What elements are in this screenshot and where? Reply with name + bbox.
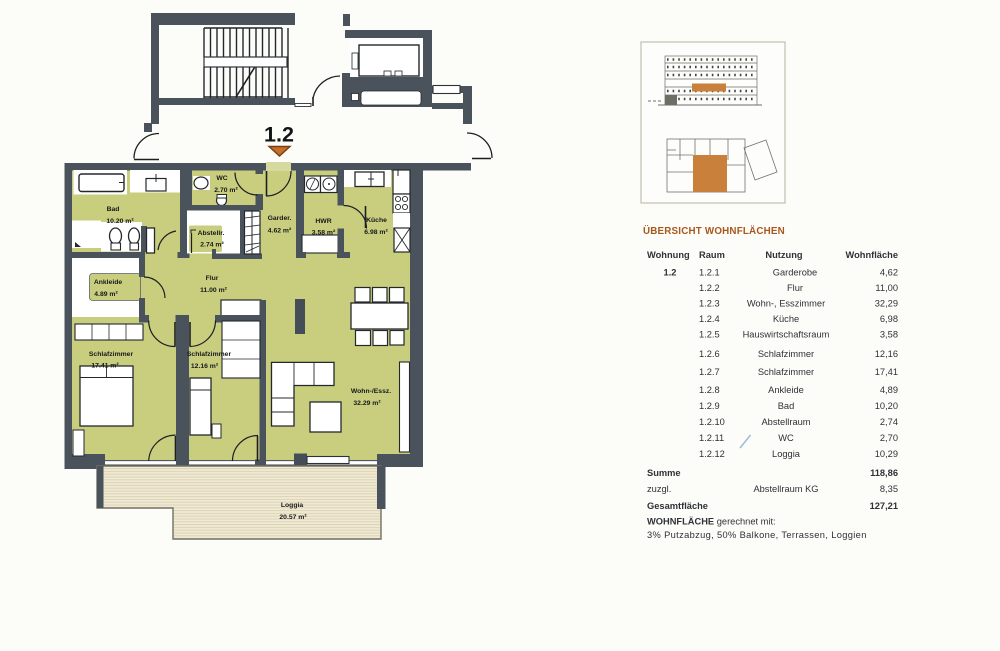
svg-text:zuzgl.: zuzgl. — [647, 484, 671, 494]
svg-text:Garder.: Garder. — [268, 215, 292, 222]
svg-text:2.70 m²: 2.70 m² — [214, 187, 238, 194]
svg-text:Nutzung: Nutzung — [765, 250, 802, 260]
svg-text:Flur: Flur — [787, 283, 803, 293]
svg-text:1.2.5: 1.2.5 — [699, 330, 720, 340]
svg-text:Gesamtfläche: Gesamtfläche — [647, 501, 708, 511]
svg-text:8,35: 8,35 — [880, 484, 898, 494]
svg-text:Wohn-/Essz.: Wohn-/Essz. — [351, 388, 391, 395]
svg-text:3,58: 3,58 — [880, 330, 898, 340]
svg-text:32,29: 32,29 — [875, 299, 898, 309]
svg-text:2.74 m²: 2.74 m² — [200, 242, 224, 249]
svg-text:1.2.1: 1.2.1 — [699, 268, 720, 278]
svg-text:1.2.10: 1.2.10 — [699, 417, 725, 427]
svg-text:11.00 m²: 11.00 m² — [200, 287, 228, 294]
svg-text:Bad: Bad — [107, 206, 120, 213]
svg-text:6.98 m²: 6.98 m² — [364, 229, 388, 236]
svg-text:Wohn-, Esszimmer: Wohn-, Esszimmer — [747, 299, 825, 309]
svg-text:HWR: HWR — [315, 218, 331, 225]
svg-text:1.2.12: 1.2.12 — [699, 449, 725, 459]
svg-text:2,70: 2,70 — [880, 433, 898, 443]
svg-text:Flur: Flur — [206, 275, 219, 282]
svg-text:1.2.7: 1.2.7 — [699, 367, 720, 377]
svg-text:Abstellraum: Abstellraum — [761, 417, 810, 427]
svg-text:WOHNFLÄCHE gerechnet mit:: WOHNFLÄCHE gerechnet mit: — [647, 517, 776, 527]
svg-text:10,29: 10,29 — [875, 449, 898, 459]
svg-text:Raum: Raum — [699, 250, 725, 260]
svg-text:1.2.6: 1.2.6 — [699, 349, 720, 359]
svg-text:Hauswirtschaftsraum: Hauswirtschaftsraum — [743, 330, 830, 340]
svg-text:Summe: Summe — [647, 468, 681, 478]
svg-text:1.2: 1.2 — [664, 268, 677, 278]
svg-text:1.2.11: 1.2.11 — [699, 433, 724, 443]
svg-text:6,98: 6,98 — [880, 314, 898, 324]
svg-text:4.62 m²: 4.62 m² — [268, 228, 292, 235]
svg-text:127,21: 127,21 — [870, 501, 898, 511]
svg-text:12.16 m²: 12.16 m² — [191, 363, 219, 370]
svg-text:Abstellr.: Abstellr. — [198, 230, 225, 237]
svg-text:Wohnfläche: Wohnfläche — [845, 250, 898, 260]
svg-text:Loggia: Loggia — [772, 449, 801, 459]
svg-text:118,86: 118,86 — [870, 468, 898, 478]
svg-text:10,20: 10,20 — [875, 401, 898, 411]
svg-text:Abstellraum KG: Abstellraum KG — [753, 484, 818, 494]
svg-text:4.89 m²: 4.89 m² — [94, 291, 118, 298]
svg-text:Ankleide: Ankleide — [94, 279, 123, 286]
svg-text:Schlafzimmer: Schlafzimmer — [187, 351, 232, 358]
svg-text:Loggia: Loggia — [281, 502, 303, 509]
svg-text:10.20 m²: 10.20 m² — [106, 218, 134, 225]
svg-text:Wohnung: Wohnung — [647, 250, 690, 260]
svg-text:1.2: 1.2 — [264, 123, 294, 147]
svg-text:4,62: 4,62 — [880, 268, 898, 278]
svg-text:1.2.4: 1.2.4 — [699, 314, 720, 324]
svg-text:Schlafzimmer: Schlafzimmer — [758, 349, 814, 359]
svg-text:Küche: Küche — [366, 217, 387, 224]
svg-text:12,16: 12,16 — [875, 349, 898, 359]
svg-text:Schlafzimmer: Schlafzimmer — [758, 367, 814, 377]
svg-text:3% Putzabzug, 50% Balkone, Ter: 3% Putzabzug, 50% Balkone, Terrassen, Lo… — [647, 530, 867, 540]
svg-text:Bad: Bad — [778, 401, 795, 411]
svg-text:Garderobe: Garderobe — [773, 268, 817, 278]
svg-text:1.2.9: 1.2.9 — [699, 401, 720, 411]
svg-text:1.2.8: 1.2.8 — [699, 385, 720, 395]
svg-text:Ankleide: Ankleide — [768, 385, 804, 395]
svg-text:1.2.2: 1.2.2 — [699, 283, 720, 293]
svg-text:11,00: 11,00 — [875, 283, 898, 293]
svg-text:32.29 m²: 32.29 m² — [353, 400, 381, 407]
svg-text:Schlafzimmer: Schlafzimmer — [89, 351, 134, 358]
svg-text:WC: WC — [216, 175, 227, 182]
svg-text:17,41: 17,41 — [875, 367, 898, 377]
svg-text:4,89: 4,89 — [880, 385, 898, 395]
svg-text:ÜBERSICHT WOHNFLÄCHEN: ÜBERSICHT WOHNFLÄCHEN — [643, 226, 785, 237]
svg-text:Küche: Küche — [773, 314, 799, 324]
svg-text:17.41 m²: 17.41 m² — [91, 363, 119, 370]
svg-text:WC: WC — [778, 433, 794, 443]
svg-text:20.57 m²: 20.57 m² — [279, 514, 307, 521]
svg-text:2,74: 2,74 — [880, 417, 898, 427]
svg-text:1.2.3: 1.2.3 — [699, 299, 720, 309]
